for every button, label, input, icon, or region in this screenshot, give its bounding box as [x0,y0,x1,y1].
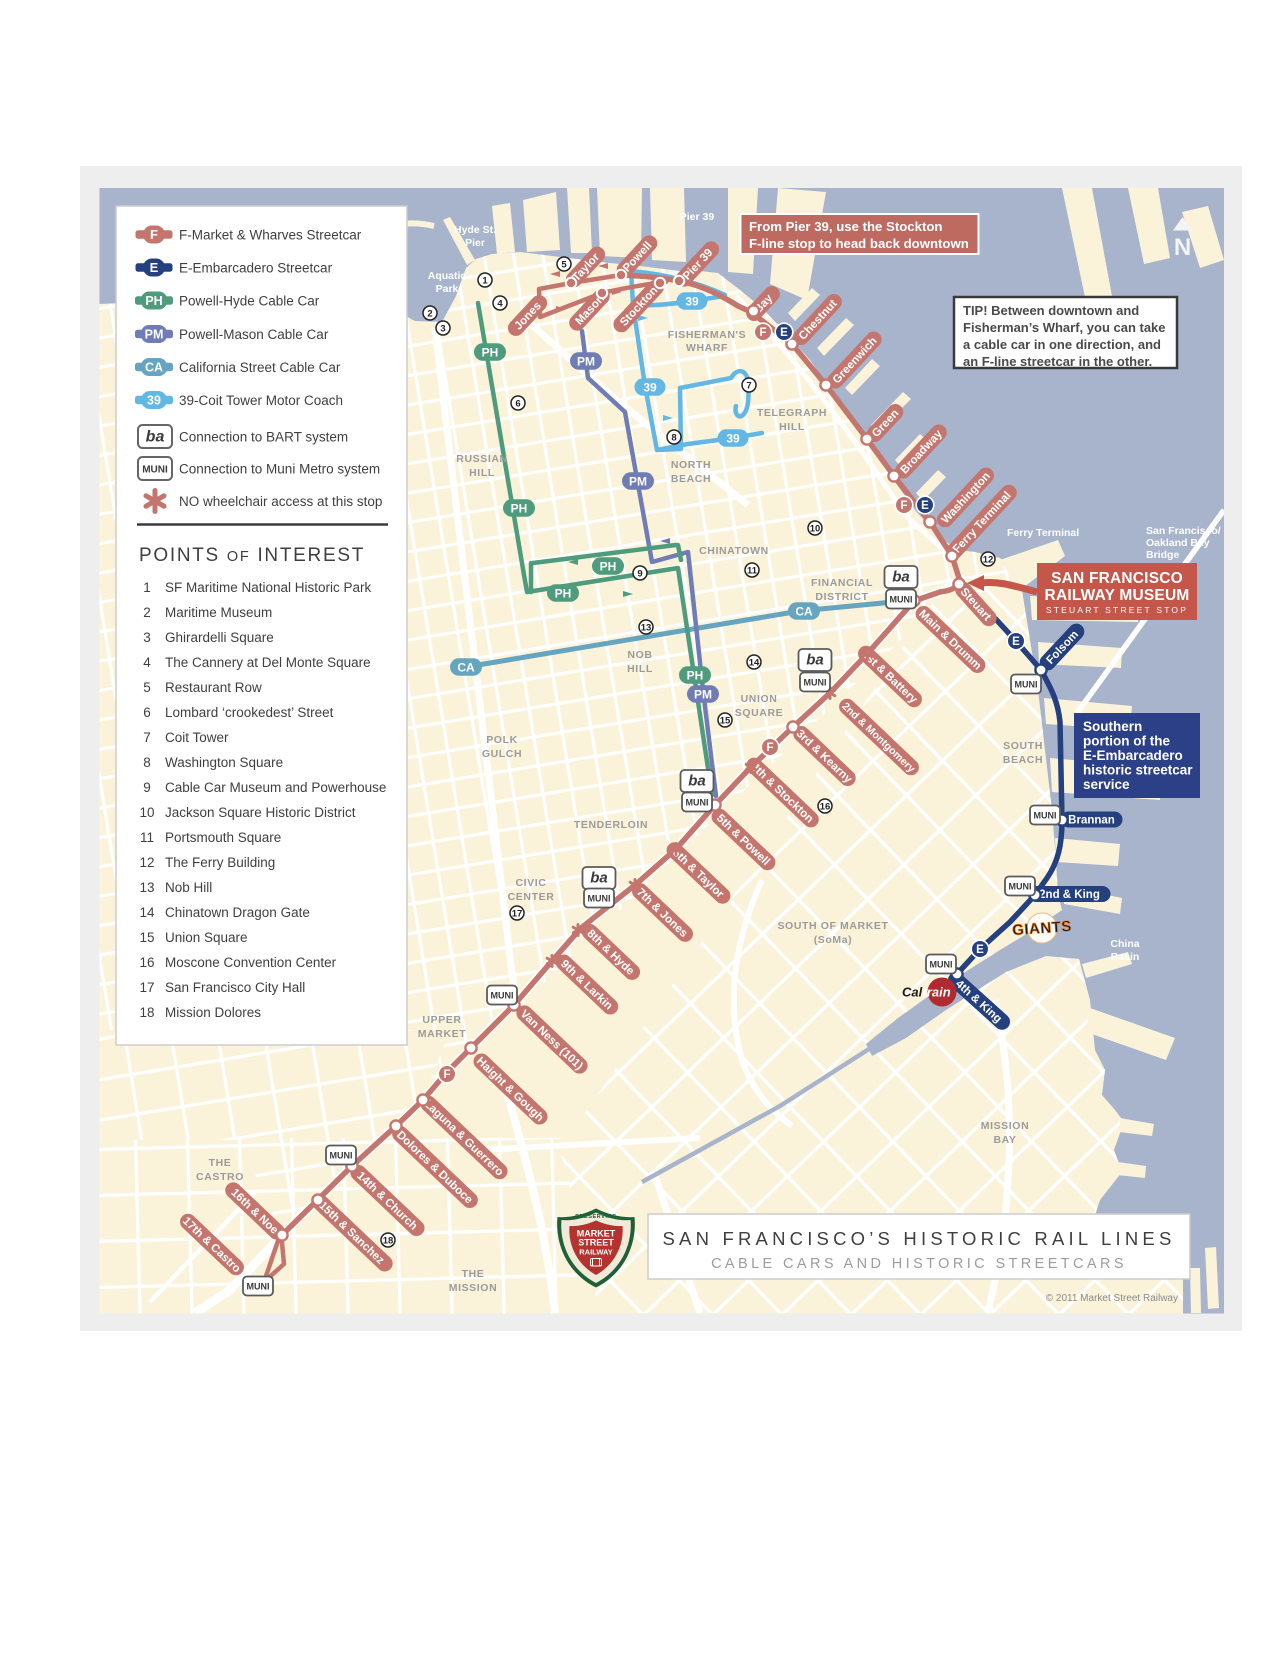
svg-text:MUNI: MUNI [142,465,168,476]
svg-text:Pier: Pier [465,237,485,249]
svg-text:MUNI: MUNI [247,1282,270,1292]
svg-text:San Francisco/: San Francisco/ [1146,525,1221,537]
svg-text:BEACH: BEACH [1003,754,1043,766]
svg-text:Park: Park [436,283,459,295]
svg-text:an F-line streetcar in the oth: an F-line streetcar in the other. [963,354,1152,369]
svg-text:7: 7 [143,730,151,745]
svg-text:RUSSIAN: RUSSIAN [456,453,507,465]
svg-text:FINANCIAL: FINANCIAL [811,577,873,589]
svg-text:39: 39 [685,295,699,309]
svg-text:4: 4 [143,655,151,670]
svg-text:Basin: Basin [1111,951,1140,963]
svg-text:Ghirardelli Square: Ghirardelli Square [165,630,274,645]
svg-text:39: 39 [726,432,740,446]
svg-text:39: 39 [147,394,161,408]
svg-text:PH: PH [482,346,499,360]
svg-text:SAN FRANCISCO: SAN FRANCISCO [1051,570,1183,587]
svg-text:CABLE CARS AND HISTORIC STREET: CABLE CARS AND HISTORIC STREETCARS [711,1256,1127,1272]
svg-text:Cable Car Museum and Powerhous: Cable Car Museum and Powerhouse [165,780,386,795]
svg-text:MUNI: MUNI [804,678,827,688]
svg-text:ba: ba [146,429,165,446]
svg-text:(SoMa): (SoMa) [814,934,853,946]
svg-text:2: 2 [143,605,151,620]
svg-text:CA: CA [145,361,163,375]
svg-text:PM: PM [629,475,647,489]
svg-text:SQUARE: SQUARE [735,707,784,719]
svg-text:E-Embarcadero: E-Embarcadero [1083,748,1183,763]
svg-text:DISTRICT: DISTRICT [815,591,868,603]
svg-text:Jackson Square Historic Distri: Jackson Square Historic District [165,805,356,820]
svg-text:CENTER: CENTER [508,891,555,903]
svg-text:STREET: STREET [578,1238,614,1248]
svg-text:TELEGRAPH: TELEGRAPH [757,407,827,419]
svg-text:TENDERLOIN: TENDERLOIN [574,819,648,831]
svg-text:PH: PH [687,669,704,683]
svg-text:13: 13 [641,622,652,633]
svg-text:HILL: HILL [469,467,495,479]
svg-text:The Ferry Building: The Ferry Building [165,855,275,870]
svg-text:Ferry Terminal: Ferry Terminal [1007,527,1079,539]
svg-text:Restaurant Row: Restaurant Row [165,680,262,695]
svg-text:F: F [150,227,158,242]
svg-text:12: 12 [983,554,994,565]
svg-text:Powell-Hyde Cable Car: Powell-Hyde Cable Car [179,294,320,309]
svg-text:CA: CA [795,605,813,619]
svg-text:F: F [900,500,907,512]
svg-text:F-Market & Wharves Streetcar: F-Market & Wharves Streetcar [179,228,362,243]
svg-text:13: 13 [139,880,154,895]
svg-text:10: 10 [139,805,154,820]
svg-text:Oakland Bay: Oakland Bay [1146,537,1210,549]
svg-text:THE: THE [209,1157,232,1169]
svg-text:18: 18 [139,1005,154,1020]
svg-text:Union Square: Union Square [165,930,248,945]
svg-text:GULCH: GULCH [482,748,522,760]
svg-text:E: E [780,327,788,339]
svg-text:39: 39 [643,381,657,395]
svg-text:MUNI: MUNI [1009,882,1032,892]
svg-text:17: 17 [512,908,523,919]
svg-text:Brannan: Brannan [1068,815,1115,827]
svg-text:2: 2 [427,308,432,319]
svg-text:NORTH: NORTH [671,459,711,471]
svg-text:39-Coit Tower Motor Coach: 39-Coit Tower Motor Coach [179,393,343,408]
svg-text:PM: PM [577,355,595,369]
svg-text:The Cannery at Del Monte Squar: The Cannery at Del Monte Square [165,655,371,670]
svg-text:RAILWAY MUSEUM: RAILWAY MUSEUM [1045,587,1190,604]
svg-text:MUNI: MUNI [930,960,953,970]
svg-text:9: 9 [637,568,642,579]
svg-text:MISSION: MISSION [449,1282,498,1294]
svg-text:historic streetcar: historic streetcar [1083,763,1193,778]
svg-text:NO wheelchair access at this s: NO wheelchair access at this stop [179,494,382,509]
svg-text:F: F [443,1069,450,1081]
svg-text:F-line stop to head back downt: F-line stop to head back downtown [749,236,969,251]
svg-text:E: E [921,500,929,512]
svg-text:Southern: Southern [1083,719,1142,734]
svg-text:NOB: NOB [627,649,652,661]
svg-text:ba: ba [892,569,910,586]
svg-text:ba: ba [688,773,706,790]
svg-text:MUNI: MUNI [686,798,709,808]
svg-text:MUNI: MUNI [1034,811,1057,821]
svg-text:15: 15 [720,715,731,726]
svg-text:PH: PH [511,502,528,516]
svg-text:ba: ba [806,652,824,669]
svg-text:Coit Tower: Coit Tower [165,730,229,745]
svg-text:SF Maritime National Historic: SF Maritime National Historic Park [165,580,372,595]
svg-text:From Pier 39, use the Stockton: From Pier 39, use the Stockton [749,219,942,234]
svg-text:5: 5 [143,680,151,695]
svg-text:a cable car in one direction,: a cable car in one direction, and [963,337,1161,352]
svg-text:BAY: BAY [993,1134,1016,1146]
svg-text:F: F [759,327,766,339]
svg-text:portion of the: portion of the [1083,734,1170,749]
svg-text:STEUART STREET STOP: STEUART STREET STOP [1046,605,1188,615]
svg-text:ba: ba [590,870,608,887]
svg-text:5: 5 [561,259,567,270]
svg-text:Moscone Convention Center: Moscone Convention Center [165,955,337,970]
svg-text:SOUTH OF MARKET: SOUTH OF MARKET [777,920,888,932]
svg-text:F: F [766,742,773,754]
svg-text:TIP! Between downtown and: TIP! Between downtown and [963,303,1139,318]
svg-text:11: 11 [747,565,758,576]
svg-text:SAN FRANCISCO’S HISTORIC RAIL: SAN FRANCISCO’S HISTORIC RAIL LINES [663,1228,1176,1249]
svg-text:Fisherman’s Wharf, you can tak: Fisherman’s Wharf, you can take [963,320,1166,335]
svg-text:3: 3 [440,323,445,334]
svg-text:6: 6 [515,398,520,409]
svg-text:3: 3 [143,630,151,645]
svg-text:HILL: HILL [627,663,653,675]
svg-text:Connection to BART system: Connection to BART system [179,430,348,445]
svg-text:MUNI: MUNI [890,595,913,605]
svg-text:MUNI: MUNI [330,1151,353,1161]
svg-text:PM: PM [694,688,712,702]
svg-text:2nd & King: 2nd & King [1039,889,1100,901]
svg-text:Connection to Muni Metro syste: Connection to Muni Metro system [179,462,380,477]
svg-text:Nob Hill: Nob Hill [165,880,212,895]
svg-text:THE: THE [462,1268,485,1280]
svg-text:Hyde St.: Hyde St. [454,224,496,236]
svg-text:Portsmouth Square: Portsmouth Square [165,830,281,845]
svg-text:8: 8 [143,755,151,770]
svg-text:train: train [923,985,951,1000]
svg-text:18: 18 [383,1235,394,1246]
svg-text:E-Embarcadero Streetcar: E-Embarcadero Streetcar [179,261,333,276]
svg-text:CHINATOWN: CHINATOWN [699,545,769,557]
svg-text:BEACH: BEACH [671,473,711,485]
svg-text:UNION: UNION [741,693,778,705]
svg-text:WHARF: WHARF [686,342,728,354]
svg-text:Lombard ‘crookedest’ Street: Lombard ‘crookedest’ Street [165,705,334,720]
svg-text:PH: PH [600,560,617,574]
svg-text:MISSION: MISSION [981,1120,1030,1132]
svg-text:POINTS OF INTEREST: POINTS OF INTEREST [139,545,365,566]
svg-text:N: N [1174,234,1191,261]
svg-text:Bridge: Bridge [1146,549,1179,561]
svg-text:6: 6 [143,705,151,720]
svg-text:Pier 39: Pier 39 [680,211,715,223]
svg-text:China: China [1110,938,1139,950]
svg-text:11: 11 [140,830,154,845]
svg-text:Maritime Museum: Maritime Museum [165,605,272,620]
svg-text:1: 1 [482,275,488,286]
svg-text:PRESERVING: PRESERVING [575,1214,617,1220]
svg-text:E: E [976,944,984,956]
svg-text:MUNI: MUNI [1015,680,1038,690]
svg-text:CIVIC: CIVIC [515,877,546,889]
svg-text:10: 10 [810,523,821,534]
svg-text:CA: CA [457,661,475,675]
svg-text:MUNI: MUNI [491,991,514,1001]
svg-text:15: 15 [139,930,154,945]
svg-text:17: 17 [139,980,154,995]
svg-text:Washington Square: Washington Square [165,755,283,770]
svg-text:SOUTH: SOUTH [1003,740,1043,752]
svg-text:HILL: HILL [779,421,805,433]
svg-text:14: 14 [139,905,155,920]
svg-text:San Francisco City Hall: San Francisco City Hall [165,980,305,995]
svg-text:9: 9 [143,780,151,795]
svg-text:Aquatic: Aquatic [428,270,467,282]
svg-text:RAILWAY: RAILWAY [579,1248,612,1257]
svg-text:Cal: Cal [902,985,923,1000]
svg-text:PH: PH [145,294,162,308]
svg-text:CASTRO: CASTRO [196,1171,244,1183]
svg-text:PM: PM [145,328,164,342]
svg-text:FISHERMAN'S: FISHERMAN'S [668,329,747,341]
svg-text:16: 16 [820,801,831,812]
svg-text:E: E [1012,636,1020,648]
svg-text:4: 4 [497,298,503,309]
svg-text:1: 1 [143,580,151,595]
svg-text:MUNI: MUNI [588,894,611,904]
svg-text:UPPER: UPPER [422,1014,461,1026]
svg-text:E: E [150,260,159,275]
svg-text:Mission Dolores: Mission Dolores [165,1005,261,1020]
svg-text:© 2011 Market Street Railway: © 2011 Market Street Railway [1046,1293,1178,1304]
svg-text:16: 16 [139,955,154,970]
svg-text:PH: PH [555,587,572,601]
svg-text:12: 12 [139,855,154,870]
svg-text:California Street Cable Car: California Street Cable Car [179,360,341,375]
svg-text:Chinatown Dragon Gate: Chinatown Dragon Gate [165,905,310,920]
svg-text:7: 7 [746,380,751,391]
svg-text:14: 14 [749,657,760,668]
svg-text:8: 8 [671,432,676,443]
svg-text:Powell-Mason Cable Car: Powell-Mason Cable Car [179,327,329,342]
svg-text:POLK: POLK [486,734,518,746]
svg-text:service: service [1083,777,1130,792]
svg-text:MARKET: MARKET [418,1028,467,1040]
